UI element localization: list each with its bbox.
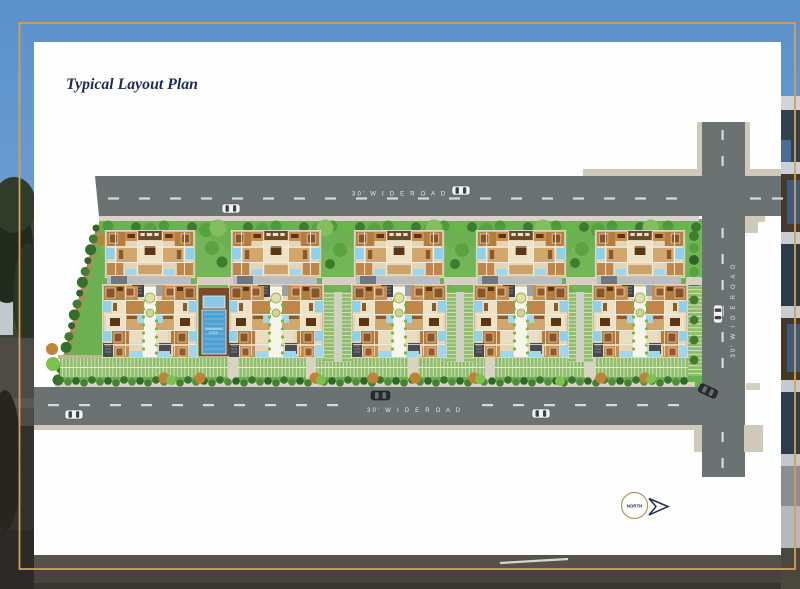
svg-text:NORTH: NORTH	[627, 504, 643, 509]
svg-text:30' W I D E R O A D: 30' W I D E R O A D	[367, 408, 462, 414]
svg-text:POOL: POOL	[209, 331, 219, 335]
svg-text:Typical Layout Plan: Typical Layout Plan	[66, 76, 198, 93]
svg-text:30' W I D E R O A D: 30' W I D E R O A D	[731, 262, 737, 357]
svg-text:30' W I D E R O A D: 30' W I D E R O A D	[352, 192, 447, 198]
